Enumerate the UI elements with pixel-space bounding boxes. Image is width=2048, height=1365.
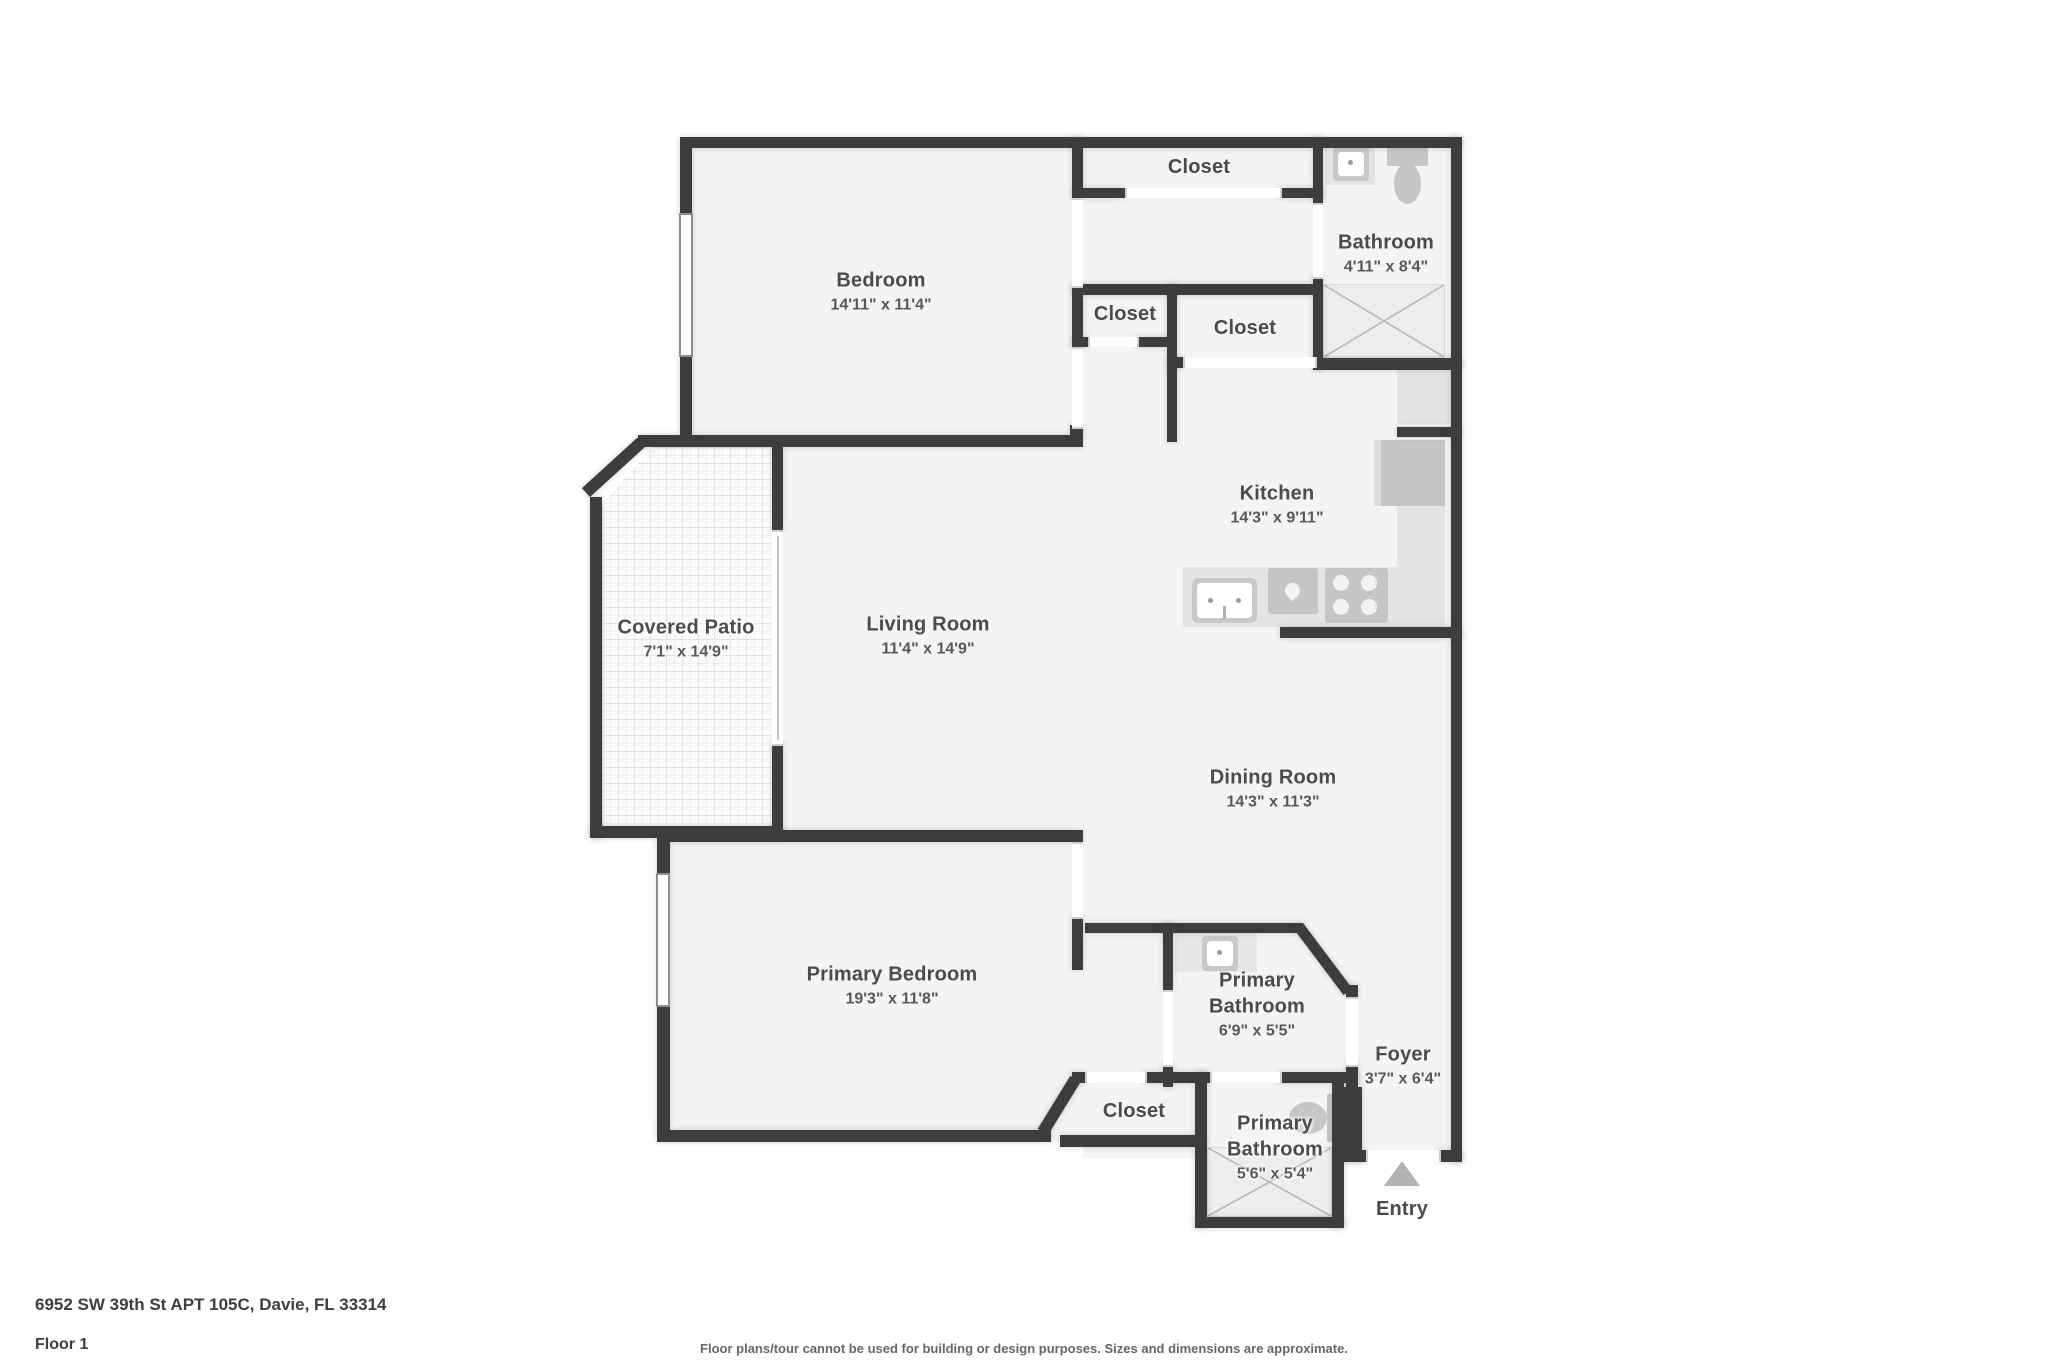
door-opening — [1313, 203, 1323, 279]
wall — [1313, 358, 1462, 370]
wall — [1072, 284, 1318, 295]
wall — [1451, 137, 1462, 1162]
kitchen-counter-right — [1397, 506, 1445, 567]
door-opening — [1183, 357, 1317, 368]
door-opening — [1088, 337, 1139, 347]
refrigerator-icon — [1381, 440, 1445, 506]
room-label-closet-bottom: Closet — [1103, 1098, 1165, 1124]
door-opening — [1163, 990, 1173, 1067]
wall — [1167, 357, 1183, 368]
property-address: 6952 SW 39th St APT 105C, Davie, FL 3331… — [35, 1295, 387, 1315]
door-opening — [1346, 997, 1358, 1067]
wall — [1072, 1072, 1085, 1083]
room-label-primary-bedroom: Primary Bedroom19'3" x 11'8" — [807, 962, 978, 1011]
floor-plan: Bedroom14'11" x 11'4" Closet Bathroom4'1… — [0, 0, 2048, 1365]
wall — [1280, 627, 1462, 638]
stove-icon — [1325, 568, 1388, 623]
wall — [638, 435, 1083, 447]
floor-plan-page: Bedroom14'11" x 11'4" Closet Bathroom4'1… — [0, 0, 2048, 1365]
disclaimer-text: Floor plans/tour cannot be used for buil… — [0, 1341, 2048, 1356]
room-label-closet-top: Closet — [1168, 154, 1230, 180]
sink-icon — [1202, 936, 1238, 971]
room-label-dining-room: Dining Room14'3" x 11'3" — [1210, 765, 1337, 814]
door-opening — [1210, 1072, 1282, 1083]
door-opening — [1125, 188, 1282, 198]
wall — [1278, 1072, 1358, 1083]
wall — [772, 447, 783, 530]
room-label-kitchen: Kitchen14'3" x 9'11" — [1230, 481, 1323, 530]
room-label-closet-wide: Closet — [1214, 315, 1276, 341]
sliding-door-track — [777, 536, 779, 740]
window — [656, 873, 670, 1007]
kitchen-sink-icon — [1192, 578, 1257, 623]
wall — [1195, 1217, 1344, 1228]
wall — [680, 137, 1462, 148]
wall — [1167, 368, 1177, 442]
room-label-primary-bathroom-lower: Primary Bathroom5'6" x 5'4" — [1195, 1111, 1355, 1186]
wall — [657, 830, 1083, 842]
wall — [1397, 427, 1462, 437]
wall — [1072, 337, 1088, 347]
wall — [1163, 923, 1173, 990]
wall — [1313, 137, 1323, 203]
sink-icon — [1333, 147, 1369, 181]
entry-door-opening — [1366, 1150, 1441, 1162]
room-label-living-room: Living Room11'4" x 14'9" — [866, 612, 989, 661]
wall — [590, 497, 602, 838]
refrigerator-icon — [1374, 440, 1381, 506]
wall — [1060, 1135, 1205, 1147]
wall — [772, 742, 783, 838]
room-label-foyer: Foyer3'7" x 6'4" — [1365, 1042, 1441, 1091]
toilet-icon — [1394, 163, 1421, 204]
wall — [1072, 188, 1125, 198]
sliding-door — [772, 530, 783, 746]
room-label-bedroom: Bedroom14'11" x 11'4" — [830, 268, 931, 317]
wall — [1085, 923, 1303, 933]
room-label-closet-small: Closet — [1094, 301, 1156, 327]
door-opening — [1072, 347, 1083, 429]
dishwasher-icon — [1268, 568, 1318, 614]
wall — [1072, 915, 1083, 970]
wall — [657, 1130, 1051, 1142]
room-label-covered-patio: Covered Patio7'1" x 14'9" — [617, 615, 754, 664]
room-label-bathroom: Bathroom4'11" x 8'4" — [1338, 230, 1434, 279]
room-label-primary-bathroom-upper: Primary Bathroom6'9" x 5'5" — [1177, 968, 1337, 1043]
window — [679, 213, 693, 357]
wall — [1135, 337, 1167, 347]
door-opening — [1072, 842, 1083, 919]
shower-icon — [1323, 284, 1445, 358]
wall — [1346, 985, 1358, 997]
wall — [1167, 284, 1177, 368]
room-label-entry: Entry — [1376, 1196, 1428, 1222]
door-opening — [1072, 198, 1083, 288]
entry-arrow-icon — [1384, 1161, 1420, 1186]
door-opening — [1085, 1072, 1147, 1083]
